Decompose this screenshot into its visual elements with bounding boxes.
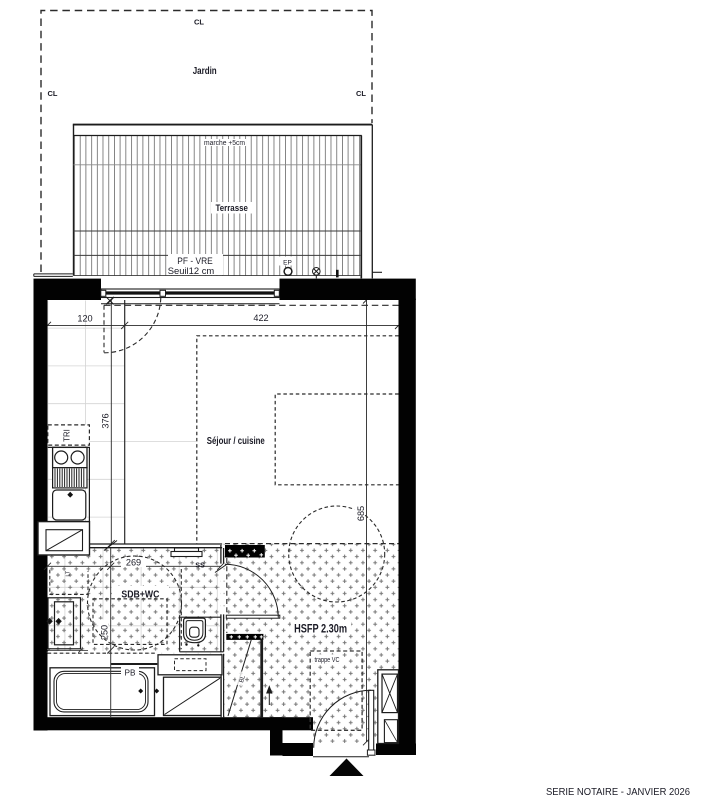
svg-text:250: 250 (99, 625, 109, 640)
svg-text:TRI: TRI (63, 429, 72, 442)
svg-text:120: 120 (77, 314, 92, 324)
svg-text:trappe VC: trappe VC (315, 657, 340, 664)
svg-text:Seuil12 cm: Seuil12 cm (168, 266, 215, 277)
svg-text:PB: PB (125, 669, 136, 678)
svg-text:EP: EP (283, 259, 292, 266)
svg-text:LT: LT (65, 570, 71, 576)
svg-text:376: 376 (100, 413, 110, 428)
svg-text:CL: CL (356, 89, 366, 98)
svg-text:Jardin: Jardin (193, 66, 217, 77)
svg-text:CL: CL (48, 89, 58, 98)
svg-text:SERIE NOTAIRE - JANVIER 2026: SERIE NOTAIRE - JANVIER 2026 (546, 786, 690, 798)
svg-text:Séjour / cuisine: Séjour / cuisine (207, 436, 265, 447)
svg-text:SS: SS (195, 561, 205, 570)
svg-text:269: 269 (126, 558, 141, 568)
svg-text:HSFP 2.30m: HSFP 2.30m (294, 623, 347, 635)
svg-text:marche +5cm: marche +5cm (204, 140, 245, 147)
svg-text:422: 422 (253, 313, 268, 323)
svg-text:Terrasse: Terrasse (215, 203, 248, 214)
svg-text:685: 685 (356, 506, 366, 521)
svg-text:CL: CL (194, 18, 204, 27)
